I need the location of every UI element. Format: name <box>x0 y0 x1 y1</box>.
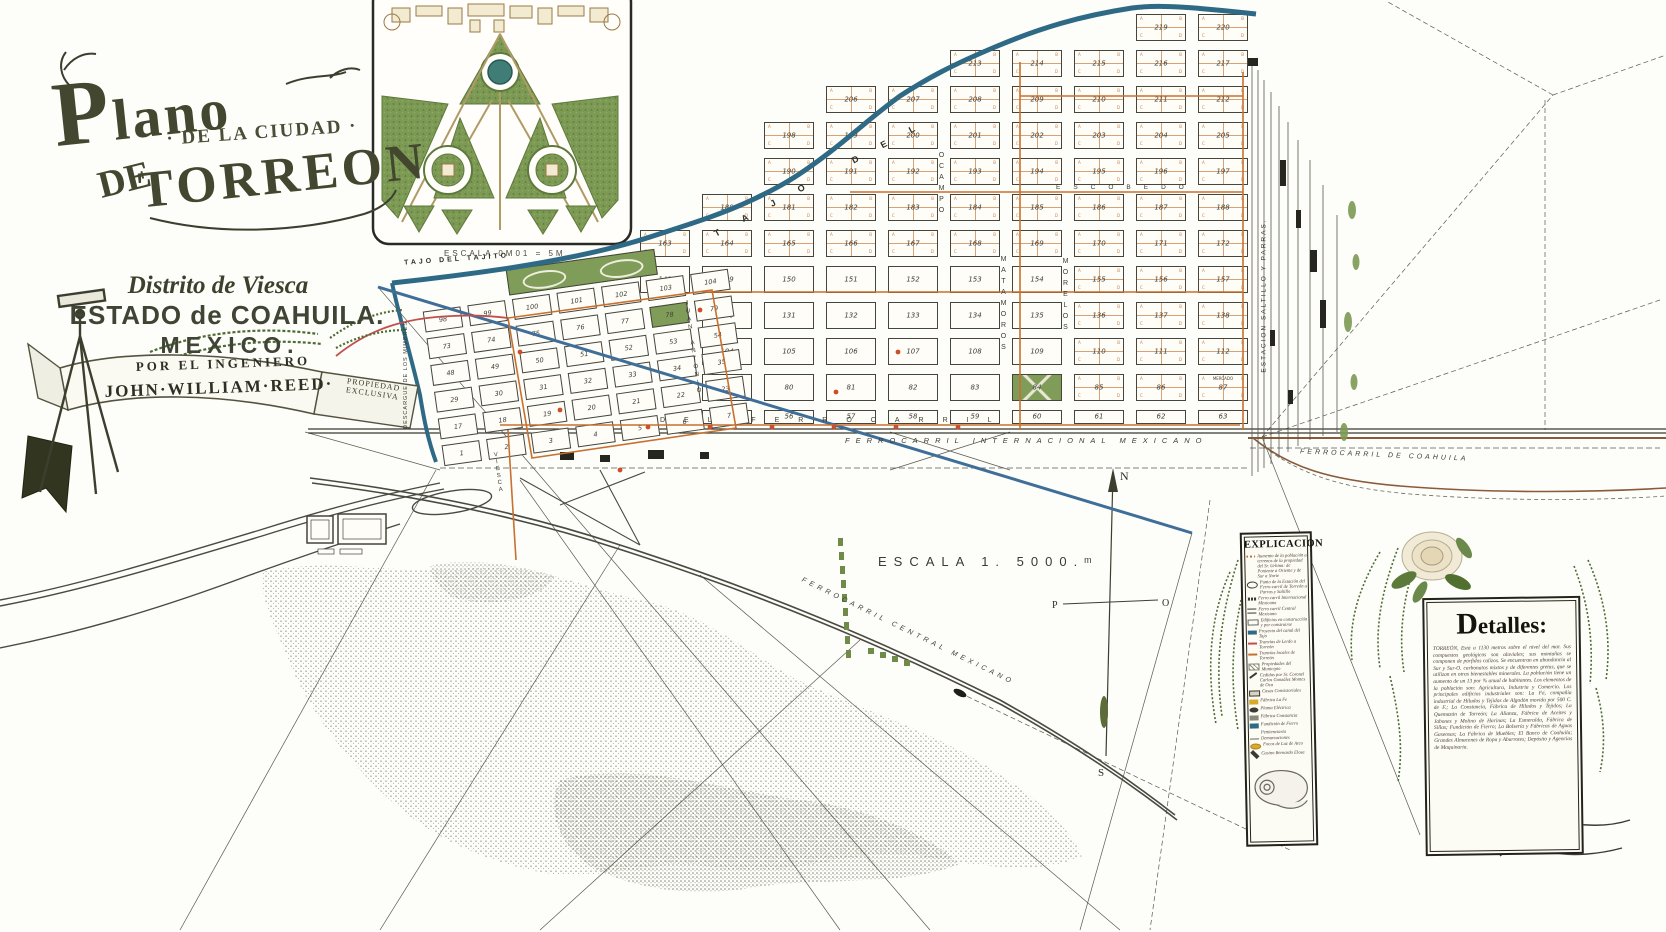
legend-symbol-hatch <box>1248 663 1259 670</box>
legend-symbol-bldg <box>1248 619 1259 625</box>
legend-item-text: Punto de la Estación del Ferro-carril de… <box>1260 578 1308 594</box>
legend-symbol-orange <box>1248 653 1257 655</box>
legend-item-text: Aumento de la población a terrenos de la… <box>1257 552 1308 578</box>
legend-symbol-rail <box>1247 597 1256 600</box>
street-ferrocarril-label: DEL FERROCARRIL <box>660 417 1010 424</box>
legend-item: Propiedades del Municipio <box>1248 660 1309 671</box>
legend-item-text: Propiedades del Municipio <box>1261 660 1309 671</box>
map-sheet: N P O S <box>0 0 1666 932</box>
legend-item: Ferro carril Internacional Mexicano <box>1247 594 1308 605</box>
legend-item-text: Casino Bernardo Elosa <box>1261 749 1304 755</box>
railway-internacional-label: FERROCARRIL INTERNACIONAL MEXICANO <box>845 436 1255 445</box>
legend-item: Aumento de la población a terrenos de la… <box>1246 552 1308 578</box>
legend-item: Punto de la Estación del Ferro-carril de… <box>1247 578 1308 594</box>
legend-item-text: Casas Consistoriales <box>1262 688 1301 694</box>
legend-item-text: Proyecto del canal del Tajo <box>1259 627 1309 638</box>
legend-item-text: Demarcaciones <box>1261 735 1290 741</box>
legend-item: Edificios en construcción y por construi… <box>1247 616 1308 627</box>
legend-symbol-house <box>1249 690 1260 696</box>
legend-symbol-target <box>1247 581 1258 588</box>
legend-item: Fundición de Fierro <box>1250 720 1311 728</box>
street-matamoros-label: MATAMOROS <box>1000 256 1007 428</box>
legend-item-text: Ferro carril Central Mexicano <box>1258 605 1308 616</box>
legend-item-text: Fábrica La Fe <box>1260 697 1287 703</box>
street-morelos-label: MORELOS <box>1062 258 1069 408</box>
map-scale-label: ESCALA 1. 5000.ᵐ <box>878 554 1099 569</box>
legend-item: Fábrica La Fe <box>1249 696 1310 704</box>
legend-item-text: Fundición de Fierro <box>1261 721 1298 727</box>
district-label: Distrito de Viesca <box>88 272 348 300</box>
arc-light-dots <box>518 308 961 473</box>
legend-symbol-pen <box>1249 672 1257 679</box>
legend-title: EXPLICACION <box>1244 538 1308 550</box>
state-label: ESTADO de COAHUILA. <box>62 300 392 331</box>
station-label: ESTACION SALTILLO Y PARRAS. <box>1261 166 1268 426</box>
tram-lines <box>500 62 1243 560</box>
legend-item: Fábrica Constancia <box>1250 712 1311 720</box>
legend-symbol-line <box>1250 738 1259 739</box>
legend-symbol-dot <box>1250 743 1261 749</box>
legend-item-text: Fábrica Constancia <box>1261 713 1298 719</box>
legend-item: Casas Consistoriales <box>1249 687 1310 696</box>
legend-item: Proyecto del canal del Tajo <box>1248 627 1309 638</box>
legend-items: Aumento de la población a terrenos de la… <box>1242 552 1314 756</box>
legend-symbol-canal <box>1248 630 1257 634</box>
legend-item-text: Planta Eléctrica <box>1260 705 1290 711</box>
legend-symbol-ylw <box>1249 699 1258 704</box>
legend-item-text: Edificios en construcción y por construi… <box>1260 616 1308 627</box>
legend-item-text: Focos de Luz de Arco <box>1263 741 1303 747</box>
legend-item-text: Cedidas por Sr. Coronel Carlos González … <box>1260 671 1310 687</box>
legend-item: Focos de Luz de Arco <box>1250 740 1311 749</box>
canal-descargue-label: DESCARGUE DE LOS MIMBRES <box>403 305 409 445</box>
street-ocampo-label: OCAMPO <box>938 152 945 264</box>
legend-item: Ferro carril Central Mexicano <box>1247 605 1308 616</box>
details-title: Detalles: <box>1428 606 1574 642</box>
legend-symbol-blk <box>1249 707 1258 712</box>
legend-item: Tranvías locales de Torreón <box>1248 649 1309 660</box>
canal-tajo <box>392 6 1256 283</box>
legend-box: EXPLICACION Aumento de la población a te… <box>1240 531 1319 846</box>
legend-item: Cedidas por Sr. Coronel Carlos González … <box>1249 671 1310 687</box>
details-body: TORREÓN, Está a 1130 metros sobre el niv… <box>1433 644 1572 751</box>
legend-symbol-red <box>1248 642 1257 644</box>
legend-symbol-teal <box>1250 723 1259 728</box>
legend-item: Tranvías de Lerdo a Torreón <box>1248 638 1309 649</box>
legend-item-text: Ferro carril Internacional Mexicano <box>1258 594 1308 605</box>
title-block: Plano · DE LA CIUDAD · DE TORREON Distri… <box>0 0 440 520</box>
legend-symbol-rail2 <box>1247 608 1256 613</box>
legend-item-text: Tranvías locales de Torreón <box>1259 649 1309 660</box>
street-escobedo-label: ESCOBEDO <box>1056 184 1197 191</box>
legend-symbol-gry <box>1250 715 1259 720</box>
legend-item: Planta Eléctrica <box>1249 704 1310 712</box>
details-box: Detalles: TORREÓN, Está a 1130 metros so… <box>1422 596 1584 856</box>
legend-symbol-dotline <box>1246 555 1255 557</box>
scroll-illustration <box>1246 756 1313 821</box>
legend-item-text: Tranvías de Lerdo a Torreón <box>1259 638 1309 649</box>
legend-item-text: Penitenciaría <box>1261 729 1286 735</box>
